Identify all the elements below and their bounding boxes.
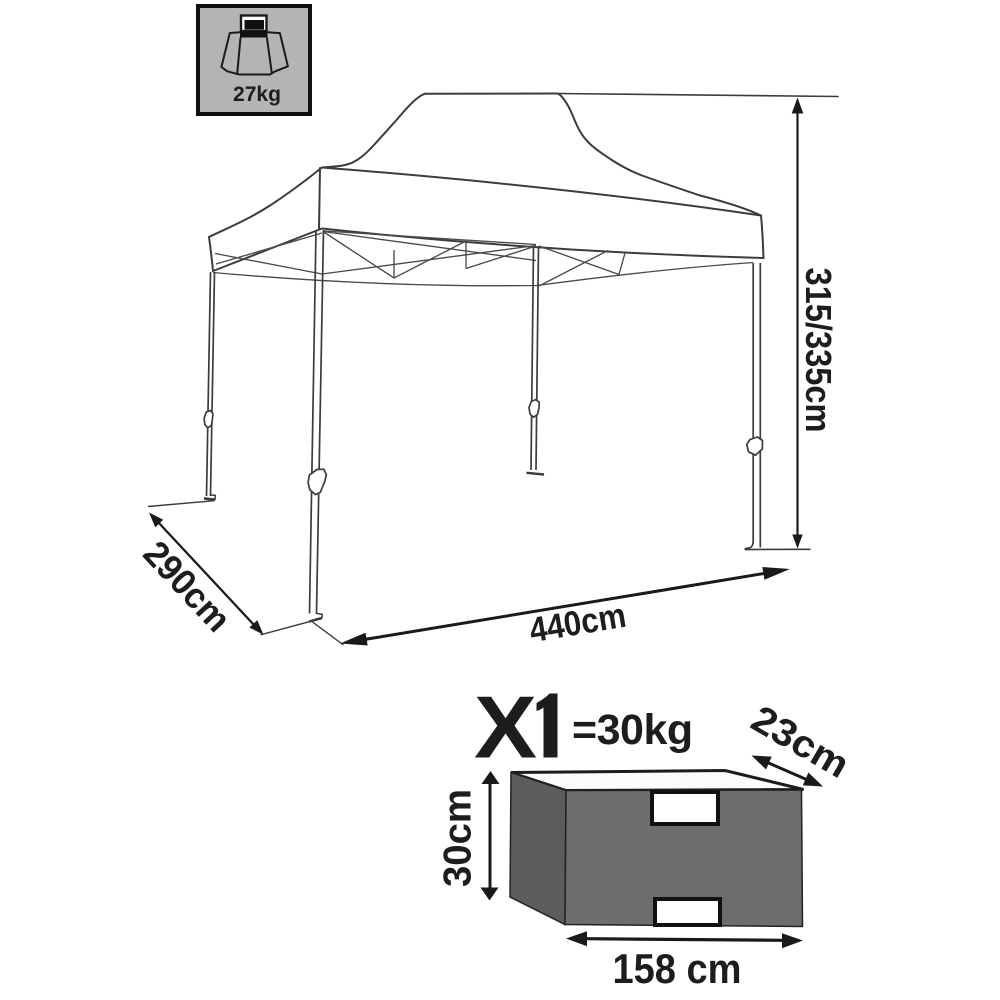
svg-text:30cm: 30cm bbox=[437, 789, 480, 887]
svg-text:27kg: 27kg bbox=[233, 83, 281, 106]
svg-text:315/335cm: 315/335cm bbox=[798, 268, 839, 433]
svg-text:X: X bbox=[474, 678, 537, 777]
svg-text:=30kg: =30kg bbox=[572, 706, 693, 754]
svg-text:158 cm: 158 cm bbox=[613, 945, 742, 992]
